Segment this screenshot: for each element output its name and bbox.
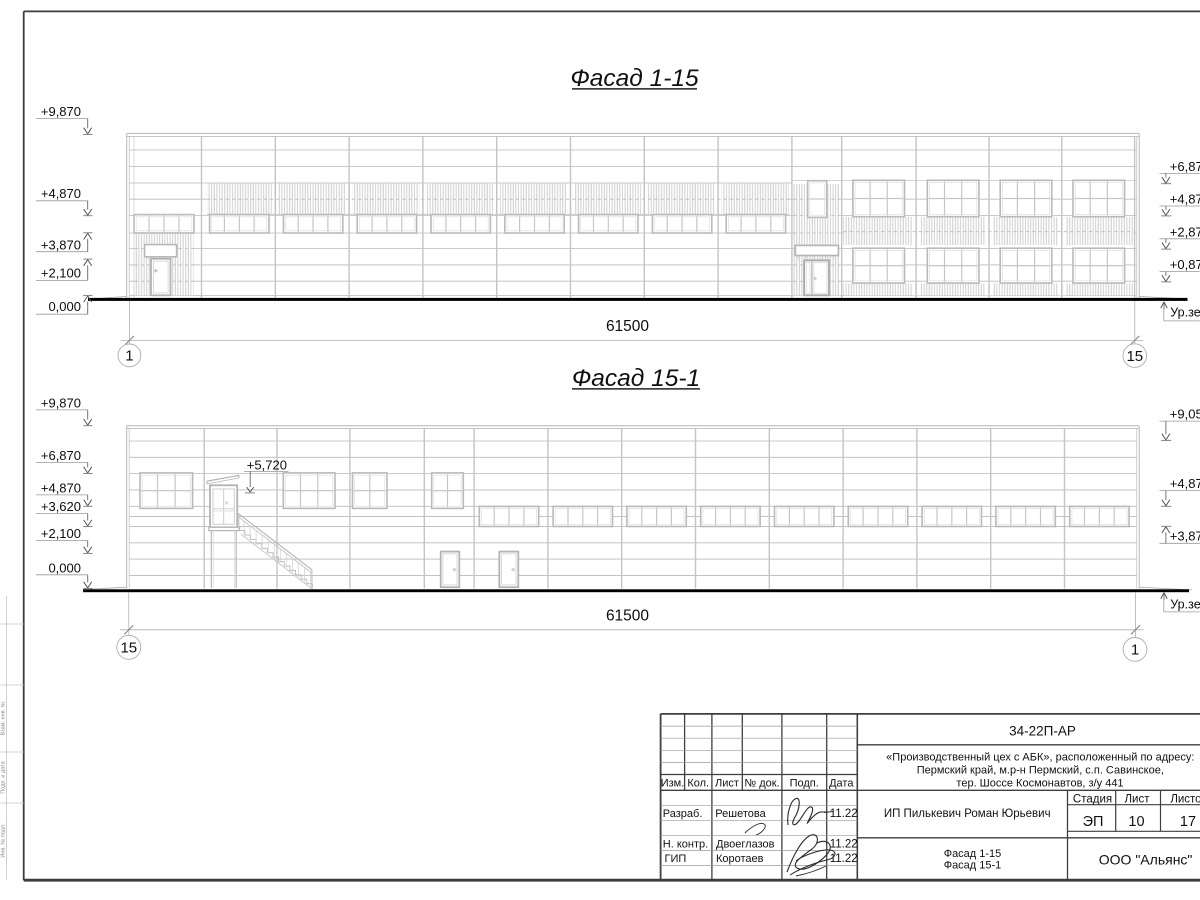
svg-text:Фасад 1-15: Фасад 1-15 bbox=[944, 848, 1002, 860]
svg-text:0,000: 0,000 bbox=[48, 299, 81, 314]
svg-text:11.22: 11.22 bbox=[830, 808, 858, 820]
svg-text:+2,870: +2,870 bbox=[1170, 224, 1200, 239]
svg-text:15: 15 bbox=[1126, 348, 1143, 365]
svg-text:11.22: 11.22 bbox=[830, 838, 858, 850]
svg-text:+2,100: +2,100 bbox=[41, 526, 81, 541]
svg-text:+4,870: +4,870 bbox=[41, 480, 81, 495]
svg-text:Подп. и дата: Подп. и дата bbox=[1, 760, 7, 793]
svg-text:Листов: Листов bbox=[1170, 794, 1200, 806]
svg-text:Изм.: Изм. bbox=[661, 778, 685, 790]
svg-text:15: 15 bbox=[120, 640, 137, 657]
svg-text:ИП Пилькевич Роман Юрьевич: ИП Пилькевич Роман Юрьевич bbox=[884, 808, 1051, 820]
svg-text:1: 1 bbox=[125, 348, 133, 365]
svg-text:Ур.зем: Ур.зем bbox=[1170, 597, 1200, 611]
svg-text:Стадия: Стадия bbox=[1073, 794, 1112, 806]
svg-text:Фасад 15-1: Фасад 15-1 bbox=[944, 859, 1002, 871]
svg-text:+6,870: +6,870 bbox=[1170, 159, 1200, 174]
svg-text:Решетова: Решетова bbox=[715, 808, 766, 820]
svg-text:61500: 61500 bbox=[606, 607, 649, 624]
svg-text:61500: 61500 bbox=[606, 318, 649, 335]
svg-text:+4,870: +4,870 bbox=[41, 186, 81, 201]
svg-text:Дата: Дата bbox=[829, 778, 854, 790]
svg-text:ООО "Альянс": ООО "Альянс" bbox=[1099, 852, 1193, 868]
svg-text:+9,870: +9,870 bbox=[41, 104, 81, 119]
svg-text:+4,870: +4,870 bbox=[1170, 476, 1200, 491]
svg-text:Коротаев: Коротаев bbox=[716, 853, 764, 865]
svg-text:+9,050: +9,050 bbox=[1170, 406, 1200, 421]
svg-text:ЭП: ЭП bbox=[1083, 814, 1104, 830]
svg-text:№ док.: № док. bbox=[744, 778, 779, 790]
svg-text:Взам. инв. №: Взам. инв. № bbox=[1, 701, 7, 735]
svg-text:Инв. № подл.: Инв. № подл. bbox=[1, 823, 7, 858]
svg-text:Н. контр.: Н. контр. bbox=[663, 838, 708, 850]
svg-text:0,000: 0,000 bbox=[48, 560, 81, 575]
svg-text:Лист: Лист bbox=[715, 778, 739, 790]
svg-text:Двоеглазов: Двоеглазов bbox=[716, 838, 775, 850]
svg-text:+5,720: +5,720 bbox=[247, 458, 287, 473]
svg-text:ГИП: ГИП bbox=[665, 853, 687, 865]
svg-text:10: 10 bbox=[1128, 814, 1144, 830]
svg-text:17: 17 bbox=[1180, 814, 1196, 830]
svg-text:«Производственный цех с АБК»,: «Производственный цех с АБК», расположен… bbox=[886, 752, 1194, 764]
svg-text:Лист: Лист bbox=[1125, 794, 1151, 806]
svg-text:1: 1 bbox=[1131, 642, 1139, 659]
svg-text:11.22: 11.22 bbox=[830, 853, 858, 865]
svg-text:+9,870: +9,870 bbox=[41, 395, 81, 410]
svg-text:+3,620: +3,620 bbox=[41, 499, 81, 514]
svg-text:+2,100: +2,100 bbox=[41, 265, 81, 280]
svg-text:+3,870: +3,870 bbox=[41, 237, 81, 252]
svg-text:Разраб.: Разраб. bbox=[663, 808, 703, 820]
svg-text:Пермский край, м.р-н Пермский,: Пермский край, м.р-н Пермский, с.п. Сави… bbox=[917, 765, 1164, 777]
svg-text:Ур.зем: Ур.зем bbox=[1170, 305, 1200, 319]
svg-text:+3,870: +3,870 bbox=[1170, 529, 1200, 544]
svg-text:Фасад 15-1: Фасад 15-1 bbox=[572, 365, 700, 392]
svg-text:34-22П-АР: 34-22П-АР bbox=[1009, 724, 1076, 739]
svg-text:Кол.: Кол. bbox=[687, 778, 709, 790]
svg-text:+4,870: +4,870 bbox=[1170, 192, 1200, 207]
svg-text:+6,870: +6,870 bbox=[41, 448, 81, 463]
svg-text:+0,870: +0,870 bbox=[1170, 257, 1200, 272]
svg-text:Подп.: Подп. bbox=[790, 778, 819, 790]
svg-text:Фасад 1-15: Фасад 1-15 bbox=[570, 65, 699, 92]
svg-text:тер. Шоссе Космонавтов, з/у 44: тер. Шоссе Космонавтов, з/у 441 bbox=[956, 778, 1123, 790]
